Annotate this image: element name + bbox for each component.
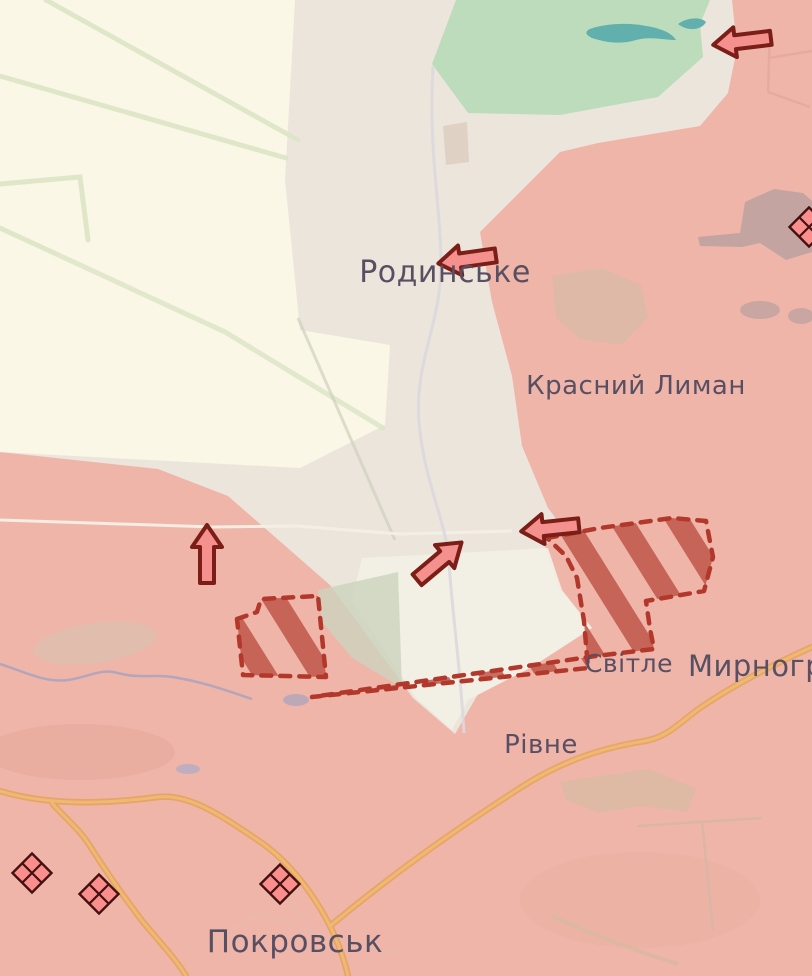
urban-patch (740, 301, 780, 319)
map-viewport[interactable]: Родинське Красний Лиман Світле Мирноград… (0, 0, 812, 976)
place-label-rivne: Рівне (504, 730, 578, 760)
place-label-myrnohrad: Мирноград (688, 649, 812, 683)
urban-patch (443, 122, 469, 165)
place-label-krasnyi-lyman: Красний Лиман (526, 371, 746, 401)
terrain-patch (520, 852, 760, 948)
place-label-rodynske: Родинське (359, 255, 531, 290)
place-label-svitle: Світле (585, 649, 673, 678)
place-label-pokrovsk: Покровськ (207, 924, 383, 960)
